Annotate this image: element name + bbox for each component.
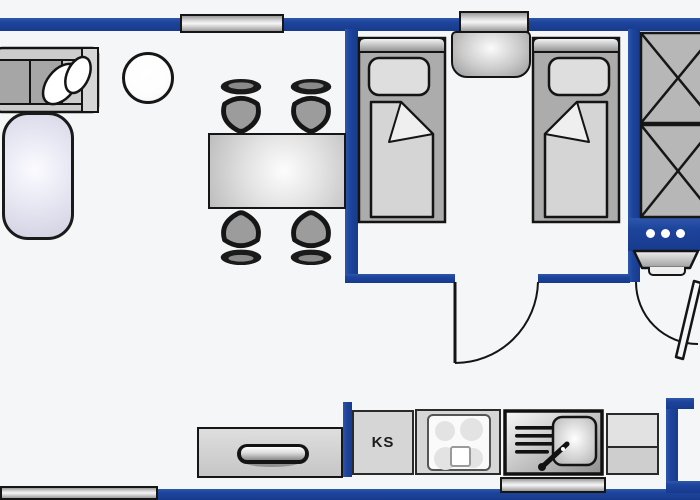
chair-icon [286, 210, 336, 266]
floor-plan: KS [0, 0, 700, 500]
door-bedroom [445, 270, 555, 375]
sideboard-handle-grip [241, 447, 305, 460]
wall-kitchen-right-bottom-flange [666, 481, 700, 493]
stove-control [450, 446, 471, 467]
refrigerator: KS [352, 410, 414, 475]
bed-icon [357, 36, 447, 226]
kitchen-counter-top [606, 413, 659, 448]
nightstand [451, 31, 531, 78]
wardrobe [639, 29, 700, 223]
kitchen-counter-bottom [606, 446, 659, 475]
washbasin-dot-1 [646, 229, 655, 238]
window-bottom-kitchen [500, 477, 606, 493]
floor-mat [2, 112, 74, 240]
chair-icon [216, 78, 266, 134]
refrigerator-label: KS [354, 412, 412, 473]
washbasin-dot-2 [661, 229, 670, 238]
dining-chair-top-left [216, 78, 266, 134]
dining-table [208, 133, 346, 209]
stove [415, 409, 501, 475]
door-arc-icon [445, 270, 555, 375]
stove-burner-2 [460, 418, 483, 441]
chair-icon [286, 78, 336, 134]
round-table [122, 52, 174, 104]
wall-kitchen-right [666, 398, 678, 490]
sink-unit [503, 409, 604, 476]
door-arc-icon [560, 268, 700, 380]
wall-kitchen-left-stub [343, 402, 352, 477]
dining-chair-bottom-right [286, 210, 336, 266]
wardrobe-x-panels-icon [639, 29, 700, 223]
corner-sofa [0, 46, 102, 116]
dining-chair-bottom-left [216, 210, 266, 266]
door-bathroom [560, 268, 700, 380]
sideboard [197, 427, 343, 478]
wall-bedroom-south-left [345, 274, 455, 283]
single-bed-left [357, 36, 447, 226]
dining-chair-top-right [286, 78, 336, 134]
sink-icon [503, 409, 604, 476]
corner-sofa-icon [0, 46, 102, 116]
window-bottom-left [0, 486, 158, 500]
window-top-bedroom [459, 11, 529, 33]
washbasin-dot-3 [676, 229, 685, 238]
wall-kitchen-right-top-flange [666, 398, 694, 409]
single-bed-right [531, 36, 621, 226]
bed-icon [531, 36, 621, 226]
window-top-left [180, 14, 284, 33]
chair-icon [216, 210, 266, 266]
stove-burner-1 [435, 421, 455, 441]
